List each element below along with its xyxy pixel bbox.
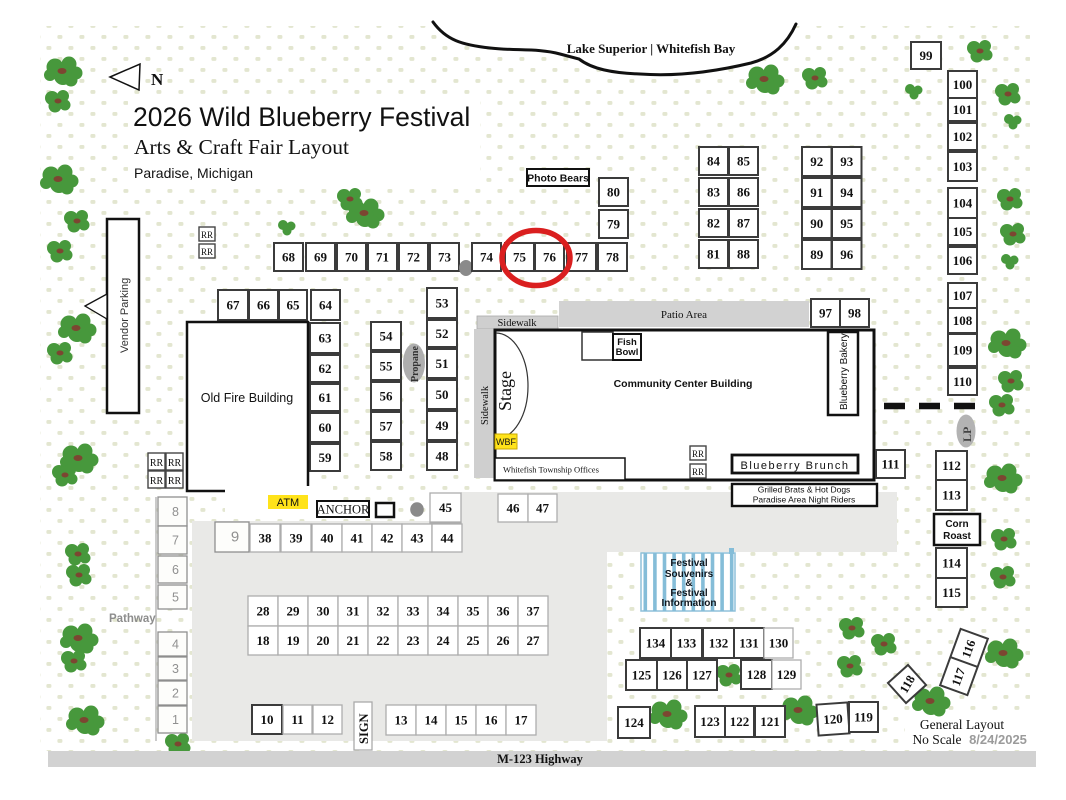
svg-text:15: 15 (455, 713, 469, 728)
svg-text:133: 133 (677, 636, 697, 651)
svg-text:13: 13 (395, 713, 409, 728)
svg-text:120: 120 (823, 711, 843, 727)
svg-text:27: 27 (527, 633, 541, 648)
svg-text:Stage: Stage (495, 371, 515, 411)
svg-text:Propane: Propane (410, 346, 421, 382)
svg-text:54: 54 (380, 329, 394, 344)
svg-text:35: 35 (467, 604, 481, 619)
svg-text:123: 123 (700, 714, 720, 729)
svg-text:14: 14 (425, 713, 439, 728)
svg-text:99: 99 (920, 48, 934, 63)
svg-text:Arts & Craft Fair Layout: Arts & Craft Fair Layout (134, 135, 349, 159)
svg-text:34: 34 (437, 604, 451, 619)
svg-text:78: 78 (606, 250, 620, 265)
svg-text:48: 48 (436, 449, 450, 464)
svg-text:58: 58 (380, 449, 394, 464)
svg-text:92: 92 (810, 154, 823, 169)
svg-text:71: 71 (376, 250, 389, 265)
svg-text:33: 33 (407, 604, 421, 619)
svg-text:37: 37 (527, 604, 541, 619)
svg-text:60: 60 (319, 420, 332, 435)
svg-text:131: 131 (739, 636, 759, 651)
svg-text:RR: RR (201, 230, 213, 240)
svg-text:97: 97 (819, 306, 833, 321)
svg-text:2026 Wild Blueberry Festival: 2026 Wild Blueberry Festival (133, 102, 470, 132)
svg-text:110: 110 (953, 374, 972, 389)
svg-text:76: 76 (543, 250, 557, 265)
svg-text:52: 52 (436, 326, 449, 341)
svg-text:12: 12 (321, 712, 334, 727)
svg-text:25: 25 (467, 633, 481, 648)
svg-text:77: 77 (575, 250, 589, 265)
svg-text:114: 114 (942, 556, 961, 571)
svg-text:111: 111 (881, 457, 899, 472)
svg-text:55: 55 (380, 359, 394, 374)
svg-text:81: 81 (707, 247, 720, 262)
svg-text:80: 80 (607, 185, 620, 200)
svg-text:7: 7 (172, 534, 179, 548)
svg-text:WBF: WBF (496, 437, 516, 447)
svg-text:108: 108 (953, 313, 973, 328)
svg-text:113: 113 (942, 488, 961, 503)
svg-text:RR: RR (150, 458, 164, 469)
svg-text:70: 70 (345, 250, 358, 265)
svg-text:105: 105 (953, 224, 973, 239)
svg-text:61: 61 (319, 390, 332, 405)
svg-text:100: 100 (953, 77, 973, 92)
svg-text:29: 29 (287, 604, 301, 619)
svg-text:LP: LP (960, 427, 974, 442)
svg-text:Whitefish Township Offices: Whitefish Township Offices (503, 465, 599, 475)
svg-text:Patio Area: Patio Area (661, 309, 707, 321)
svg-text:1: 1 (172, 713, 179, 727)
svg-text:134: 134 (646, 636, 666, 651)
svg-text:47: 47 (536, 501, 550, 516)
svg-text:121: 121 (760, 714, 780, 729)
svg-text:RR: RR (150, 476, 164, 487)
svg-text:91: 91 (810, 185, 823, 200)
svg-text:56: 56 (380, 389, 394, 404)
svg-text:32: 32 (377, 604, 390, 619)
svg-text:18: 18 (257, 633, 271, 648)
svg-text:RR: RR (168, 458, 182, 469)
svg-text:6: 6 (172, 563, 179, 577)
svg-text:103: 103 (953, 159, 973, 174)
svg-text:23: 23 (407, 633, 421, 648)
svg-text:95: 95 (840, 216, 854, 231)
svg-text:129: 129 (777, 667, 797, 682)
svg-text:SIGN: SIGN (357, 713, 371, 744)
svg-text:64: 64 (319, 298, 333, 313)
svg-text:67: 67 (227, 298, 241, 313)
svg-text:22: 22 (377, 633, 390, 648)
svg-text:3: 3 (172, 662, 179, 676)
svg-text:83: 83 (707, 185, 721, 200)
svg-text:90: 90 (810, 216, 823, 231)
svg-text:132: 132 (709, 636, 729, 651)
svg-text:Grilled Brats & Hot Dogs: Grilled Brats & Hot Dogs (758, 485, 851, 495)
svg-text:62: 62 (319, 361, 332, 376)
svg-text:2: 2 (172, 687, 179, 701)
svg-text:72: 72 (407, 250, 420, 265)
svg-text:82: 82 (707, 216, 720, 231)
svg-text:Sidewalk: Sidewalk (497, 318, 537, 329)
svg-text:Paradise, Michigan: Paradise, Michigan (134, 165, 253, 181)
svg-text:101: 101 (953, 102, 973, 117)
svg-text:94: 94 (840, 185, 854, 200)
svg-text:30: 30 (317, 604, 330, 619)
svg-text:63: 63 (319, 331, 333, 346)
svg-text:M-123 Highway: M-123 Highway (497, 752, 584, 766)
svg-text:17: 17 (515, 713, 529, 728)
svg-text:38: 38 (259, 531, 273, 546)
svg-text:11: 11 (291, 712, 303, 727)
svg-text:49: 49 (436, 418, 450, 433)
svg-text:50: 50 (436, 387, 449, 402)
svg-text:ANCHOR: ANCHOR (317, 503, 370, 517)
svg-text:8/24/2025: 8/24/2025 (969, 732, 1027, 747)
svg-text:ATM: ATM (277, 497, 299, 509)
svg-text:106: 106 (953, 253, 973, 268)
svg-text:104: 104 (953, 196, 973, 211)
svg-text:Pathway: Pathway (109, 613, 156, 625)
svg-text:45: 45 (439, 500, 453, 515)
svg-text:Sidewalk: Sidewalk (480, 385, 491, 425)
svg-text:Bowl: Bowl (616, 347, 639, 358)
svg-text:127: 127 (692, 668, 712, 683)
svg-text:51: 51 (436, 356, 449, 371)
svg-text:109: 109 (953, 343, 973, 358)
svg-text:39: 39 (290, 531, 304, 546)
svg-text:Photo Bears: Photo Bears (527, 173, 589, 185)
svg-text:107: 107 (953, 288, 973, 303)
svg-text:73: 73 (438, 250, 452, 265)
svg-text:N: N (151, 70, 164, 89)
svg-text:21: 21 (347, 633, 360, 648)
svg-text:98: 98 (848, 306, 862, 321)
svg-text:General Layout: General Layout (920, 717, 1005, 732)
svg-text:Blueberry Brunch: Blueberry Brunch (741, 460, 850, 472)
svg-text:24: 24 (437, 633, 451, 648)
svg-text:Paradise Area Night Riders: Paradise Area Night Riders (753, 495, 856, 505)
svg-text:44: 44 (441, 531, 455, 546)
svg-text:89: 89 (810, 247, 824, 262)
svg-text:119: 119 (854, 710, 873, 725)
svg-text:20: 20 (317, 633, 330, 648)
svg-text:59: 59 (319, 450, 333, 465)
svg-text:130: 130 (769, 636, 789, 651)
svg-text:115: 115 (942, 585, 961, 600)
svg-text:RR: RR (201, 247, 213, 257)
svg-text:75: 75 (513, 250, 527, 265)
svg-text:112: 112 (942, 458, 961, 473)
svg-text:88: 88 (737, 247, 751, 262)
svg-text:Old Fire Building: Old Fire Building (201, 391, 293, 405)
svg-text:69: 69 (314, 250, 328, 265)
svg-text:19: 19 (287, 633, 301, 648)
svg-text:36: 36 (497, 604, 511, 619)
svg-text:65: 65 (287, 298, 301, 313)
svg-text:Corn: Corn (945, 519, 968, 530)
svg-text:Community Center Building: Community Center Building (614, 378, 753, 390)
svg-text:79: 79 (607, 217, 621, 232)
svg-text:Blueberry Bakery: Blueberry Bakery (839, 333, 850, 410)
svg-text:125: 125 (632, 668, 652, 683)
svg-text:Roast: Roast (943, 531, 971, 542)
svg-text:RR: RR (168, 476, 182, 487)
svg-text:126: 126 (662, 668, 682, 683)
svg-text:46: 46 (507, 501, 521, 516)
svg-text:28: 28 (257, 604, 271, 619)
svg-text:102: 102 (953, 129, 973, 144)
svg-text:9: 9 (231, 529, 239, 546)
svg-text:122: 122 (730, 714, 750, 729)
svg-text:10: 10 (261, 712, 274, 727)
svg-text:124: 124 (624, 715, 644, 730)
svg-text:96: 96 (840, 247, 854, 262)
svg-text:85: 85 (737, 154, 751, 169)
svg-text:74: 74 (480, 250, 494, 265)
svg-text:87: 87 (737, 216, 751, 231)
svg-text:4: 4 (172, 638, 179, 652)
svg-text:26: 26 (497, 633, 511, 648)
svg-text:41: 41 (351, 531, 364, 546)
svg-text:40: 40 (321, 531, 334, 546)
svg-text:42: 42 (381, 531, 394, 546)
svg-text:84: 84 (707, 154, 721, 169)
svg-text:RR: RR (692, 449, 704, 459)
svg-text:5: 5 (172, 591, 179, 605)
svg-text:No Scale: No Scale (912, 732, 961, 747)
svg-text:Vendor Parking: Vendor Parking (119, 278, 131, 353)
svg-text:Information: Information (662, 598, 717, 609)
svg-text:128: 128 (747, 667, 767, 682)
svg-text:53: 53 (436, 296, 450, 311)
svg-text:Festival: Festival (670, 558, 707, 569)
svg-text:57: 57 (380, 419, 394, 434)
svg-text:43: 43 (411, 531, 425, 546)
svg-text:93: 93 (840, 154, 854, 169)
svg-text:66: 66 (257, 298, 271, 313)
svg-text:Lake Superior | Whitefish Bay: Lake Superior | Whitefish Bay (567, 41, 736, 56)
svg-text:86: 86 (737, 185, 751, 200)
svg-text:31: 31 (347, 604, 360, 619)
svg-text:8: 8 (172, 505, 179, 519)
svg-text:RR: RR (692, 467, 704, 477)
svg-text:68: 68 (282, 250, 296, 265)
svg-text:16: 16 (485, 713, 499, 728)
